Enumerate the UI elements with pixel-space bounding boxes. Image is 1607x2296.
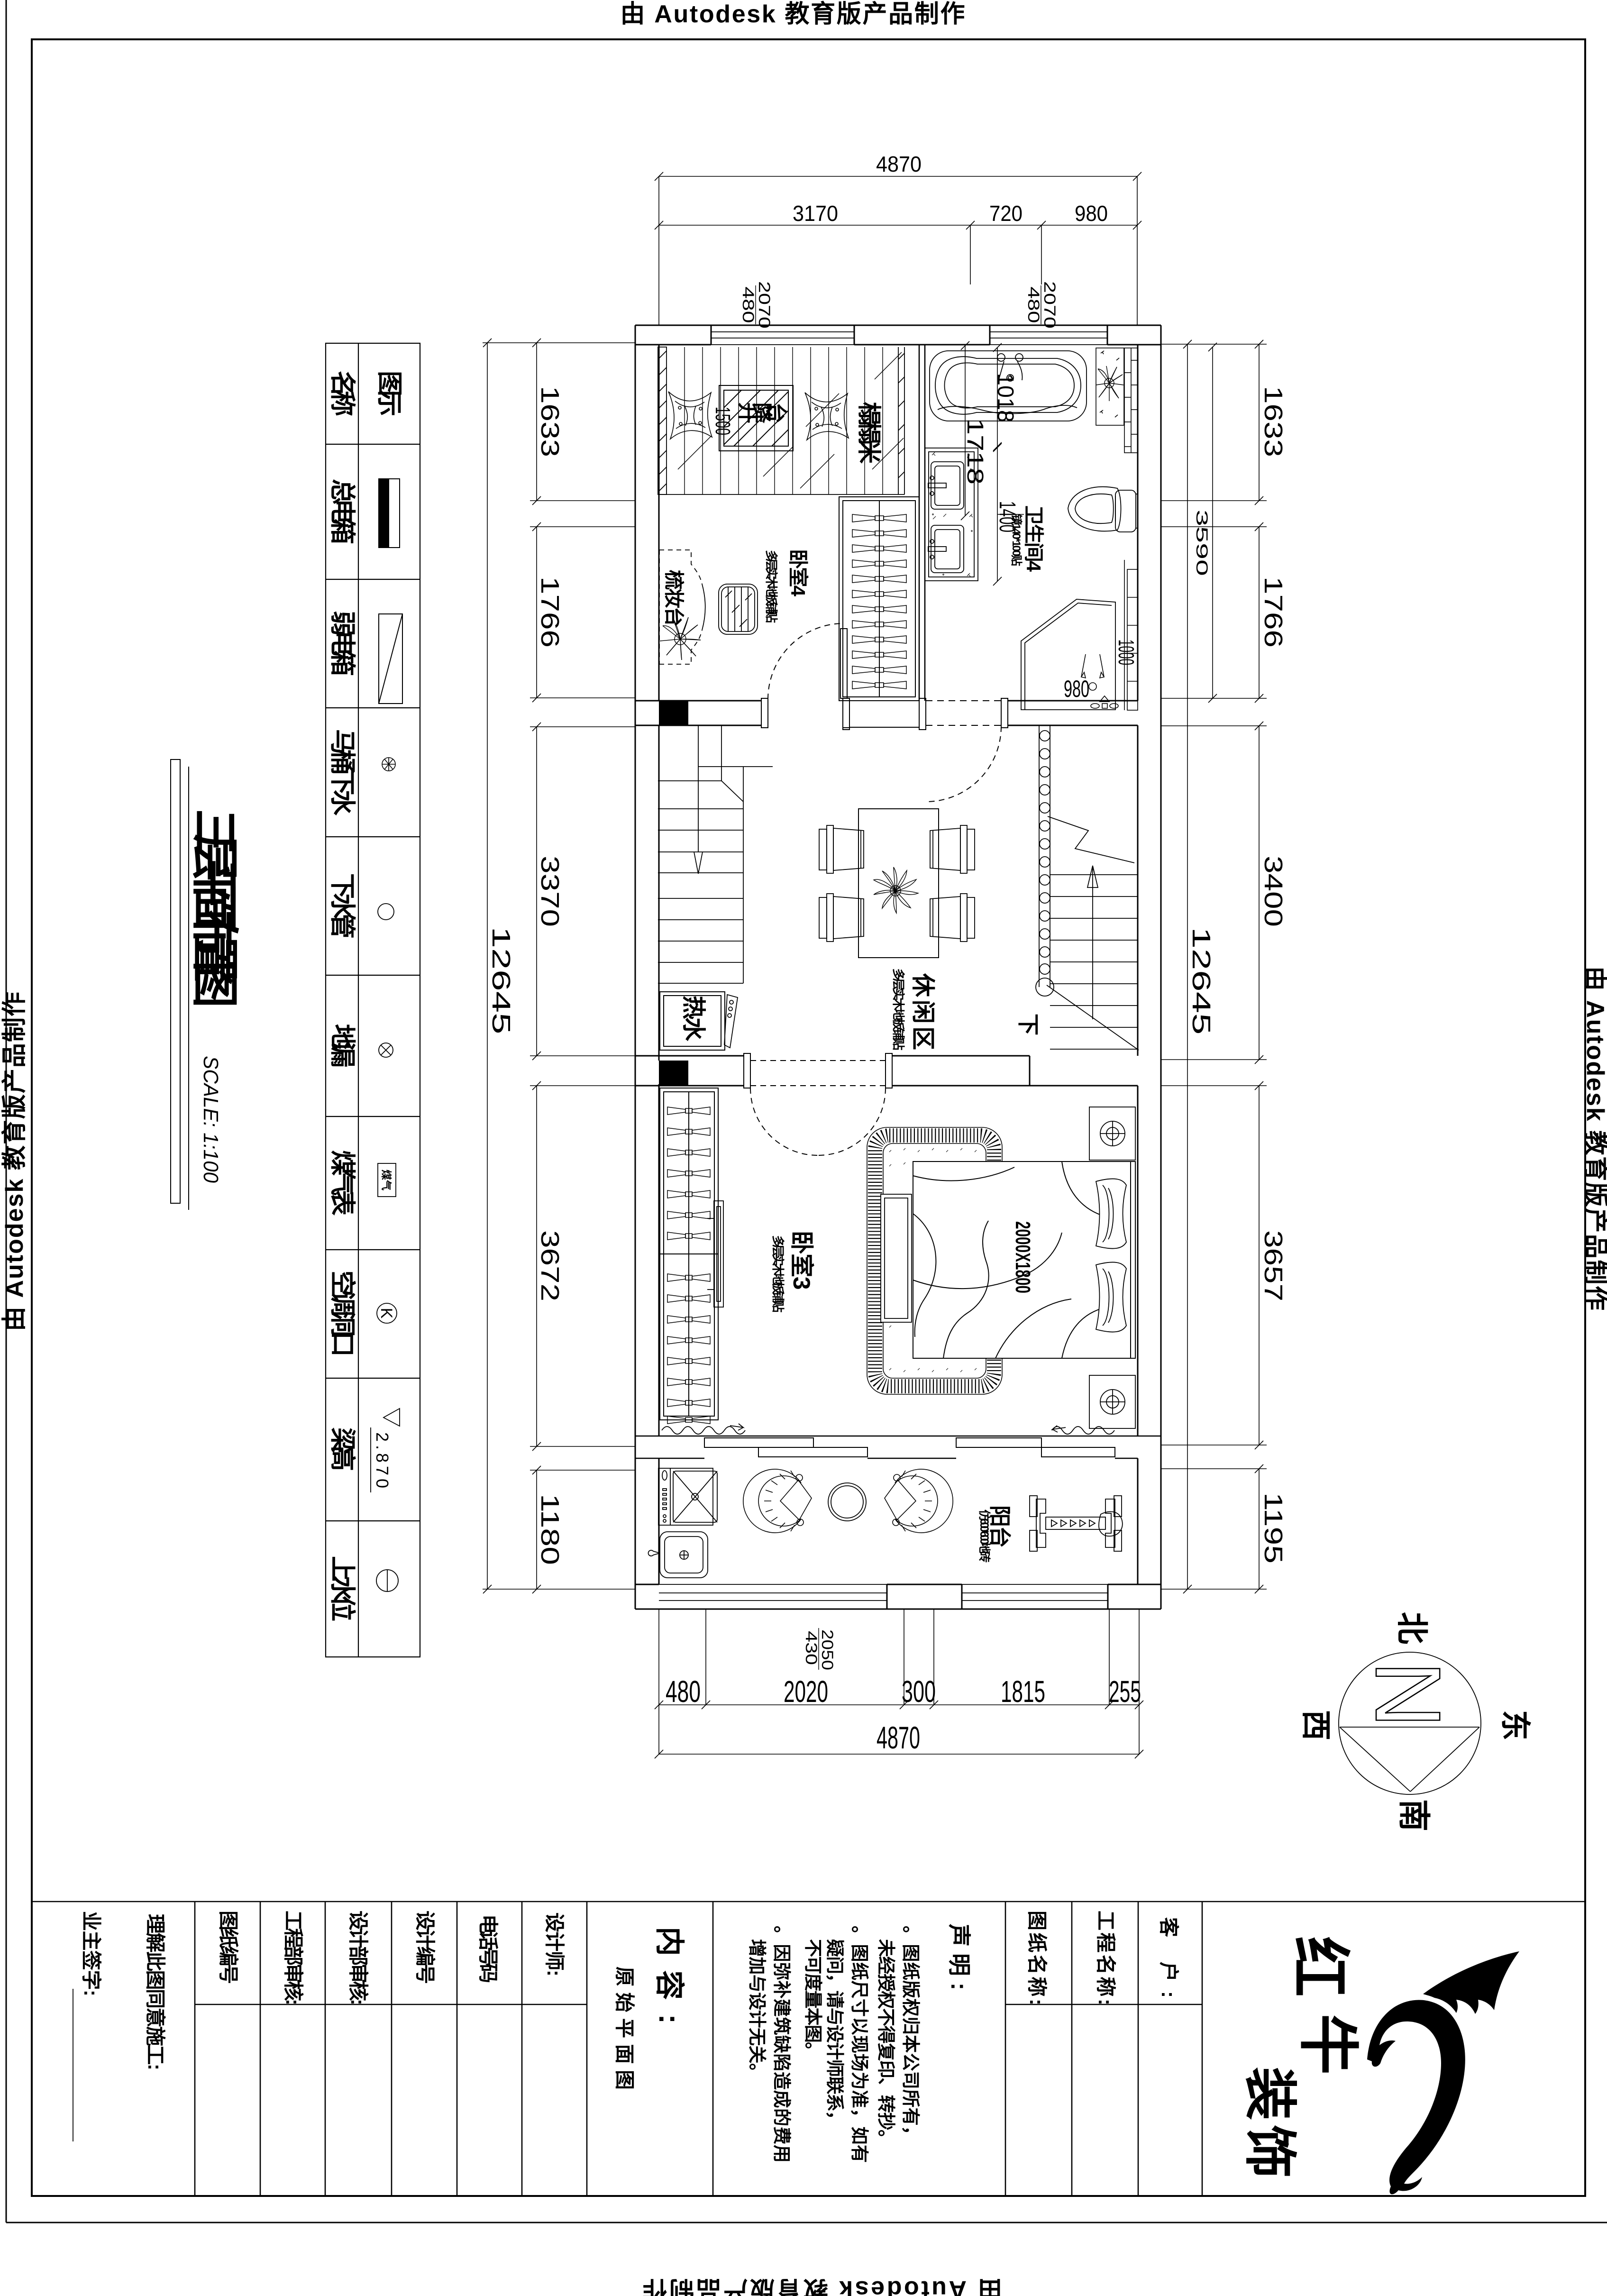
- svg-text:2050: 2050: [818, 1629, 836, 1670]
- svg-text:名称: 名称: [328, 371, 356, 416]
- svg-text:255: 255: [1109, 1674, 1141, 1709]
- svg-text:480: 480: [739, 287, 757, 323]
- svg-text:仿600*600地砖: 仿600*600地砖: [977, 1509, 991, 1563]
- svg-text:卧室3: 卧室3: [788, 1231, 815, 1290]
- svg-text:4870: 4870: [877, 1720, 920, 1755]
- svg-text:原始平面图: 原始平面图: [613, 1967, 636, 2090]
- svg-text:南: 南: [1396, 1799, 1432, 1831]
- svg-text:N: N: [1356, 1661, 1460, 1728]
- svg-text:1633: 1633: [1259, 386, 1287, 457]
- svg-text:总电箱: 总电箱: [328, 479, 356, 544]
- svg-text:多层实木地板铺贴: 多层实木地板铺贴: [891, 969, 905, 1051]
- svg-text:设计编号: 设计编号: [414, 1911, 436, 1984]
- svg-text:2.870: 2.870: [373, 1432, 392, 1488]
- svg-text:工程名称:: 工程名称:: [1095, 1911, 1117, 2005]
- svg-text:休闲区: 休闲区: [910, 973, 936, 1050]
- svg-text:300: 300: [902, 1674, 936, 1709]
- svg-text:12645: 12645: [1187, 927, 1215, 1035]
- svg-text:工程部审核:: 工程部审核:: [282, 1911, 304, 2005]
- svg-text:12645: 12645: [487, 927, 515, 1034]
- svg-text:增加与设计无关。: 增加与设计无关。: [747, 1939, 767, 2081]
- svg-text:K: K: [377, 1308, 395, 1319]
- svg-text:梁高: 梁高: [328, 1427, 356, 1471]
- svg-text:SCALE: 1:100: SCALE: 1:100: [199, 1056, 222, 1183]
- svg-text:不可度量本图。: 不可度量本图。: [803, 1939, 822, 2060]
- svg-text:梳妆台: 梳妆台: [663, 570, 685, 627]
- svg-text:1180: 1180: [536, 1494, 564, 1565]
- svg-text:图纸编号: 图纸编号: [217, 1911, 239, 1984]
- svg-text:。图纸尺寸以现场为准，如有: 。图纸尺寸以现场为准，如有: [849, 1926, 869, 2163]
- svg-text:下: 下: [1016, 1014, 1041, 1035]
- svg-text:3590: 3590: [1193, 510, 1211, 576]
- svg-text:3400: 3400: [1259, 856, 1287, 927]
- svg-text:1766: 1766: [1259, 576, 1287, 648]
- svg-text:图纸名称:: 图纸名称:: [1026, 1911, 1048, 2005]
- svg-text:下水管: 下水管: [328, 873, 356, 939]
- svg-text:720: 720: [989, 201, 1023, 226]
- svg-text:1815: 1815: [1001, 1674, 1045, 1709]
- svg-text:未经授权不得复印、转抄。: 未经授权不得复印、转抄。: [876, 1939, 895, 2148]
- svg-text:980: 980: [1075, 201, 1108, 226]
- svg-text:煤气表: 煤气表: [328, 1150, 356, 1216]
- svg-text:1195: 1195: [1259, 1492, 1287, 1564]
- svg-text:1500: 1500: [711, 407, 734, 435]
- svg-text:1633: 1633: [536, 386, 564, 457]
- svg-text:3170: 3170: [793, 201, 838, 226]
- svg-text:东: 东: [1498, 1710, 1532, 1740]
- svg-text:地漏: 地漏: [328, 1024, 356, 1068]
- svg-text:1018: 1018: [993, 373, 1018, 422]
- svg-text:2020: 2020: [784, 1674, 828, 1709]
- svg-text:业主签字:: 业主签字:: [80, 1911, 102, 1996]
- svg-text:3370: 3370: [536, 856, 564, 927]
- svg-text:480: 480: [666, 1674, 701, 1709]
- svg-text:多层实木地板铺贴: 多层实木地板铺贴: [771, 1235, 785, 1313]
- svg-text:台: 台: [764, 402, 787, 423]
- svg-text:3657: 3657: [1259, 1230, 1287, 1301]
- svg-text:卧室4: 卧室4: [787, 549, 809, 597]
- svg-text:设计师:: 设计师:: [543, 1912, 566, 1976]
- svg-text:图示: 图示: [375, 371, 403, 416]
- svg-text:设计部审核:: 设计部审核:: [347, 1911, 369, 2005]
- svg-text:1000: 1000: [1114, 640, 1139, 665]
- svg-text:疑问，请与设计师联系，: 疑问，请与设计师联系，: [824, 1939, 844, 2129]
- svg-text:2070: 2070: [1041, 281, 1059, 329]
- svg-text:电话号码: 电话号码: [477, 1914, 499, 1983]
- svg-text:2070: 2070: [755, 281, 773, 329]
- svg-text:弱电箱: 弱电箱: [328, 611, 356, 676]
- svg-text:三层平面布置图: 三层平面布置图: [188, 809, 241, 1008]
- svg-text:煤气: 煤气: [380, 1170, 392, 1190]
- svg-text:北: 北: [1394, 1612, 1430, 1644]
- svg-text:多层实木地板铺贴: 多层实木地板铺贴: [764, 550, 778, 623]
- svg-text:空调洞口: 空调洞口: [328, 1271, 356, 1357]
- svg-text:1766: 1766: [536, 576, 564, 648]
- svg-text:西: 西: [1299, 1710, 1333, 1740]
- svg-text:牛: 牛: [1294, 2014, 1361, 2075]
- svg-text:上水位: 上水位: [328, 1556, 356, 1621]
- svg-text:。图纸版权归本公司所有，: 。图纸版权归本公司所有，: [900, 1926, 920, 2144]
- svg-text:热水: 热水: [680, 996, 707, 1042]
- svg-text:430: 430: [802, 1631, 820, 1665]
- svg-text:4870: 4870: [876, 152, 922, 176]
- svg-text:饰: 饰: [1240, 2125, 1299, 2178]
- svg-text:理解此图同意施工:: 理解此图同意施工:: [144, 1914, 166, 2070]
- svg-text:马桶下水: 马桶下水: [328, 729, 356, 816]
- svg-text:榻榻米: 榻榻米: [856, 402, 882, 464]
- svg-text:红: 红: [1285, 1936, 1353, 1997]
- svg-text:卫生间4: 卫生间4: [1023, 505, 1045, 572]
- svg-text:1400: 1400: [995, 501, 1020, 532]
- svg-text:3672: 3672: [536, 1230, 564, 1301]
- svg-text:480: 480: [1024, 287, 1042, 323]
- svg-text:2000X1800: 2000X1800: [1011, 1221, 1034, 1293]
- svg-text:980: 980: [1064, 676, 1089, 702]
- svg-text:1718: 1718: [962, 418, 987, 485]
- svg-text:。因弥补建筑缺陷造成的费用: 。因弥补建筑缺陷造成的费用: [771, 1926, 791, 2163]
- svg-text:装: 装: [1240, 2067, 1299, 2120]
